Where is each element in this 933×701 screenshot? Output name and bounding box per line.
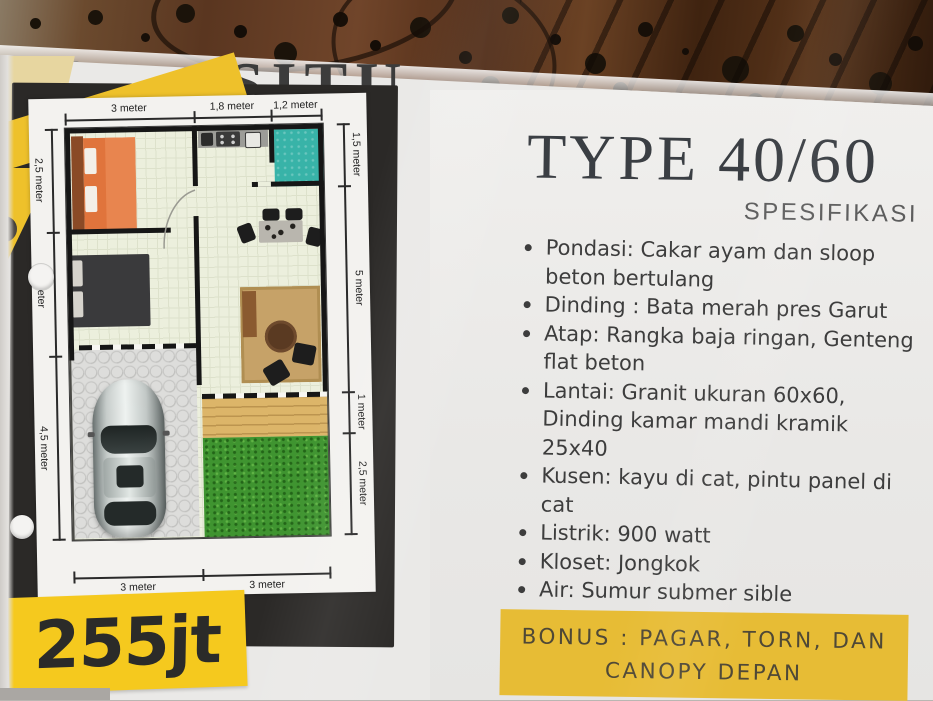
door-swing-arc [161, 188, 198, 251]
spec-item-pondasi: Pondasi: Cakar ayam dan sloop beton bert… [519, 233, 920, 298]
dim-label-left-2: meter [34, 232, 48, 356]
sleeve-left-edge [0, 55, 14, 700]
wood-carving-dots [30, 18, 41, 29]
kitchen-sink [201, 133, 213, 146]
bonus-line-1: BONUS : PAGAR, TORN, DAN [500, 620, 908, 659]
dim-label-right-1: 1,5 meter [350, 123, 363, 185]
pillow [85, 186, 97, 212]
pillow [71, 260, 82, 286]
bonus-banner: BONUS : PAGAR, TORN, DAN CANOPY DEPAN [499, 609, 908, 701]
dim-label-right-4: 2,5 meter [356, 432, 370, 535]
bathroom-door-gap [258, 182, 271, 187]
dim-label-left-1: 2,5 meter [32, 129, 46, 232]
pillow [72, 291, 83, 317]
specification-list: Pondasi: Cakar ayam dan sloop beton bert… [512, 233, 920, 640]
table-shadow [0, 688, 110, 700]
tv-console [242, 291, 257, 337]
wood-deck [202, 396, 329, 438]
dim-label-top-1: 3 meter [64, 101, 193, 115]
page-subtitle: SPESIFIKASI [560, 195, 918, 229]
dim-label-right-2: 5 meter [351, 185, 367, 391]
dim-line-left [51, 129, 60, 541]
armchair [291, 342, 316, 366]
kitchen-stove [216, 131, 240, 146]
dining-chair [262, 208, 279, 220]
dim-tick [342, 391, 355, 393]
floor-plan [65, 124, 331, 541]
car-sunroof [116, 465, 143, 488]
kitchen-counter [198, 130, 268, 148]
dim-tick [47, 232, 60, 234]
dim-label-top-2: 1,8 meter [193, 100, 270, 113]
price-tag: 255jt [6, 590, 247, 694]
dim-label-top-3: 1,2 meter [266, 99, 324, 112]
page-title: TYPE 40/60 [488, 119, 919, 199]
dim-tick [337, 123, 350, 125]
car-top-view [92, 379, 167, 538]
wall-bathroom-west [269, 125, 275, 163]
dim-label-right-3: 1 meter [355, 391, 368, 432]
kitchen-fridge [245, 132, 261, 148]
car-rear-window [104, 501, 156, 526]
dim-tick [53, 539, 66, 541]
pillow [84, 148, 96, 174]
dining-chair [285, 208, 302, 220]
bathroom-floor [274, 129, 324, 187]
car-roof [103, 457, 156, 498]
dim-tick [45, 129, 58, 131]
spec-item-kusen: Kusen: kayu di cat, pintu panel di cat [515, 461, 916, 526]
dim-tick [49, 356, 62, 358]
price-value: 255jt [33, 600, 221, 684]
dim-tick [345, 533, 358, 535]
dining-chair [236, 222, 256, 244]
wall-bedrooms-divider [67, 228, 171, 235]
car-mirror [88, 432, 95, 437]
hole-punch [28, 264, 54, 290]
bed-blanket [105, 137, 137, 230]
dim-tick [338, 185, 351, 187]
car-mirror [163, 431, 170, 436]
partially-hidden-title: SITU [228, 48, 548, 86]
garden-grass [203, 436, 331, 538]
dim-label-left-3: 4,5 meter [36, 356, 52, 541]
floorplan-card: 3 meter 1,8 meter 1,2 meter 3 meter 3 me… [28, 93, 376, 598]
spec-item-atap: Atap: Rangka baja ringan, Genteng flat b… [517, 318, 918, 383]
bonus-line-2: CANOPY DEPAN [500, 653, 908, 692]
spec-item-lantai: Lantai: Granit ukuran 60x60, Dinding kam… [516, 375, 918, 468]
spec-line: Dinding kamar mandi kramik 25x40 [542, 404, 917, 468]
dim-tick [343, 432, 356, 434]
car-windshield [101, 425, 158, 454]
dining-table [259, 220, 303, 243]
